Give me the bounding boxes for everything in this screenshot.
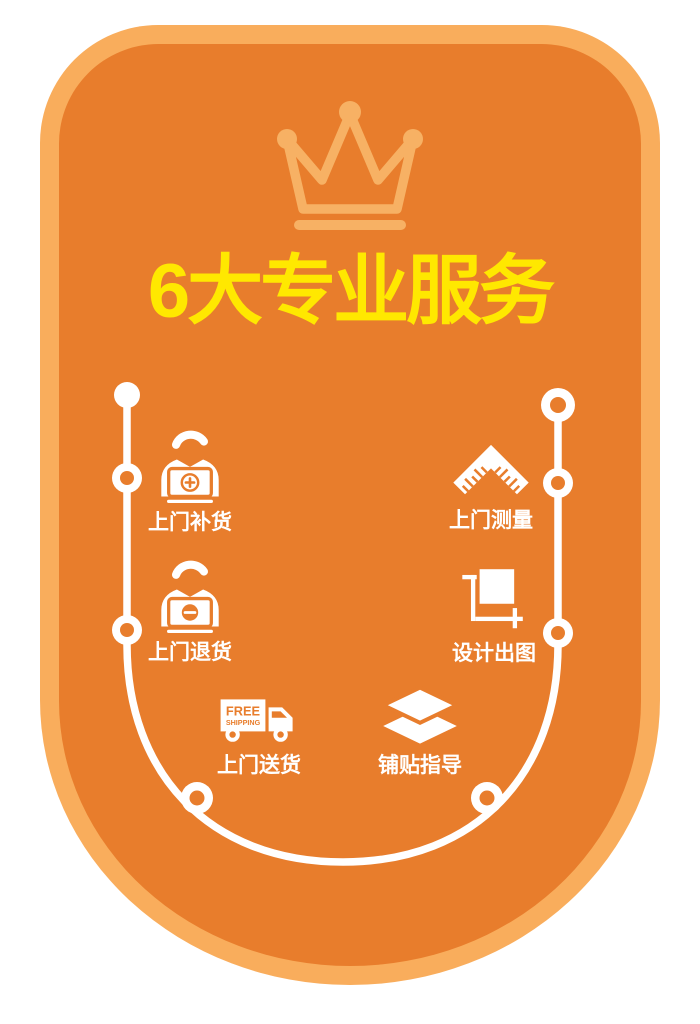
crown-icon (270, 98, 430, 243)
service-item-return: 上门退货 (115, 551, 265, 666)
delivery-truck-icon: FREE SHIPPING (219, 696, 299, 746)
truck-text-free: FREE (226, 703, 261, 718)
service-label: 上门补货 (148, 506, 232, 536)
service-label: 上门测量 (449, 504, 533, 534)
service-label: 设计出图 (452, 637, 536, 667)
page-title: 6大专业服务 (40, 249, 660, 334)
promo-banner: 6大专业服务 上门补货 (0, 0, 700, 1024)
service-label: 上门送货 (217, 749, 301, 779)
service-label: 上门退货 (148, 636, 232, 666)
measure-ruler-icon (449, 434, 533, 501)
truck-text-shipping: SHIPPING (226, 718, 261, 727)
service-label: 铺贴指导 (378, 749, 462, 779)
service-item-restock: 上门补货 (115, 421, 265, 536)
tiling-guide-icon (380, 686, 460, 746)
service-item-delivery: FREE SHIPPING 上门送货 (184, 696, 334, 779)
return-person-icon (149, 551, 231, 633)
design-drawing-icon (458, 562, 530, 634)
restock-person-icon (149, 421, 231, 503)
service-item-measure: 上门测量 (416, 434, 566, 534)
service-item-design: 设计出图 (419, 562, 569, 667)
service-item-tiling: 铺贴指导 (345, 686, 495, 779)
